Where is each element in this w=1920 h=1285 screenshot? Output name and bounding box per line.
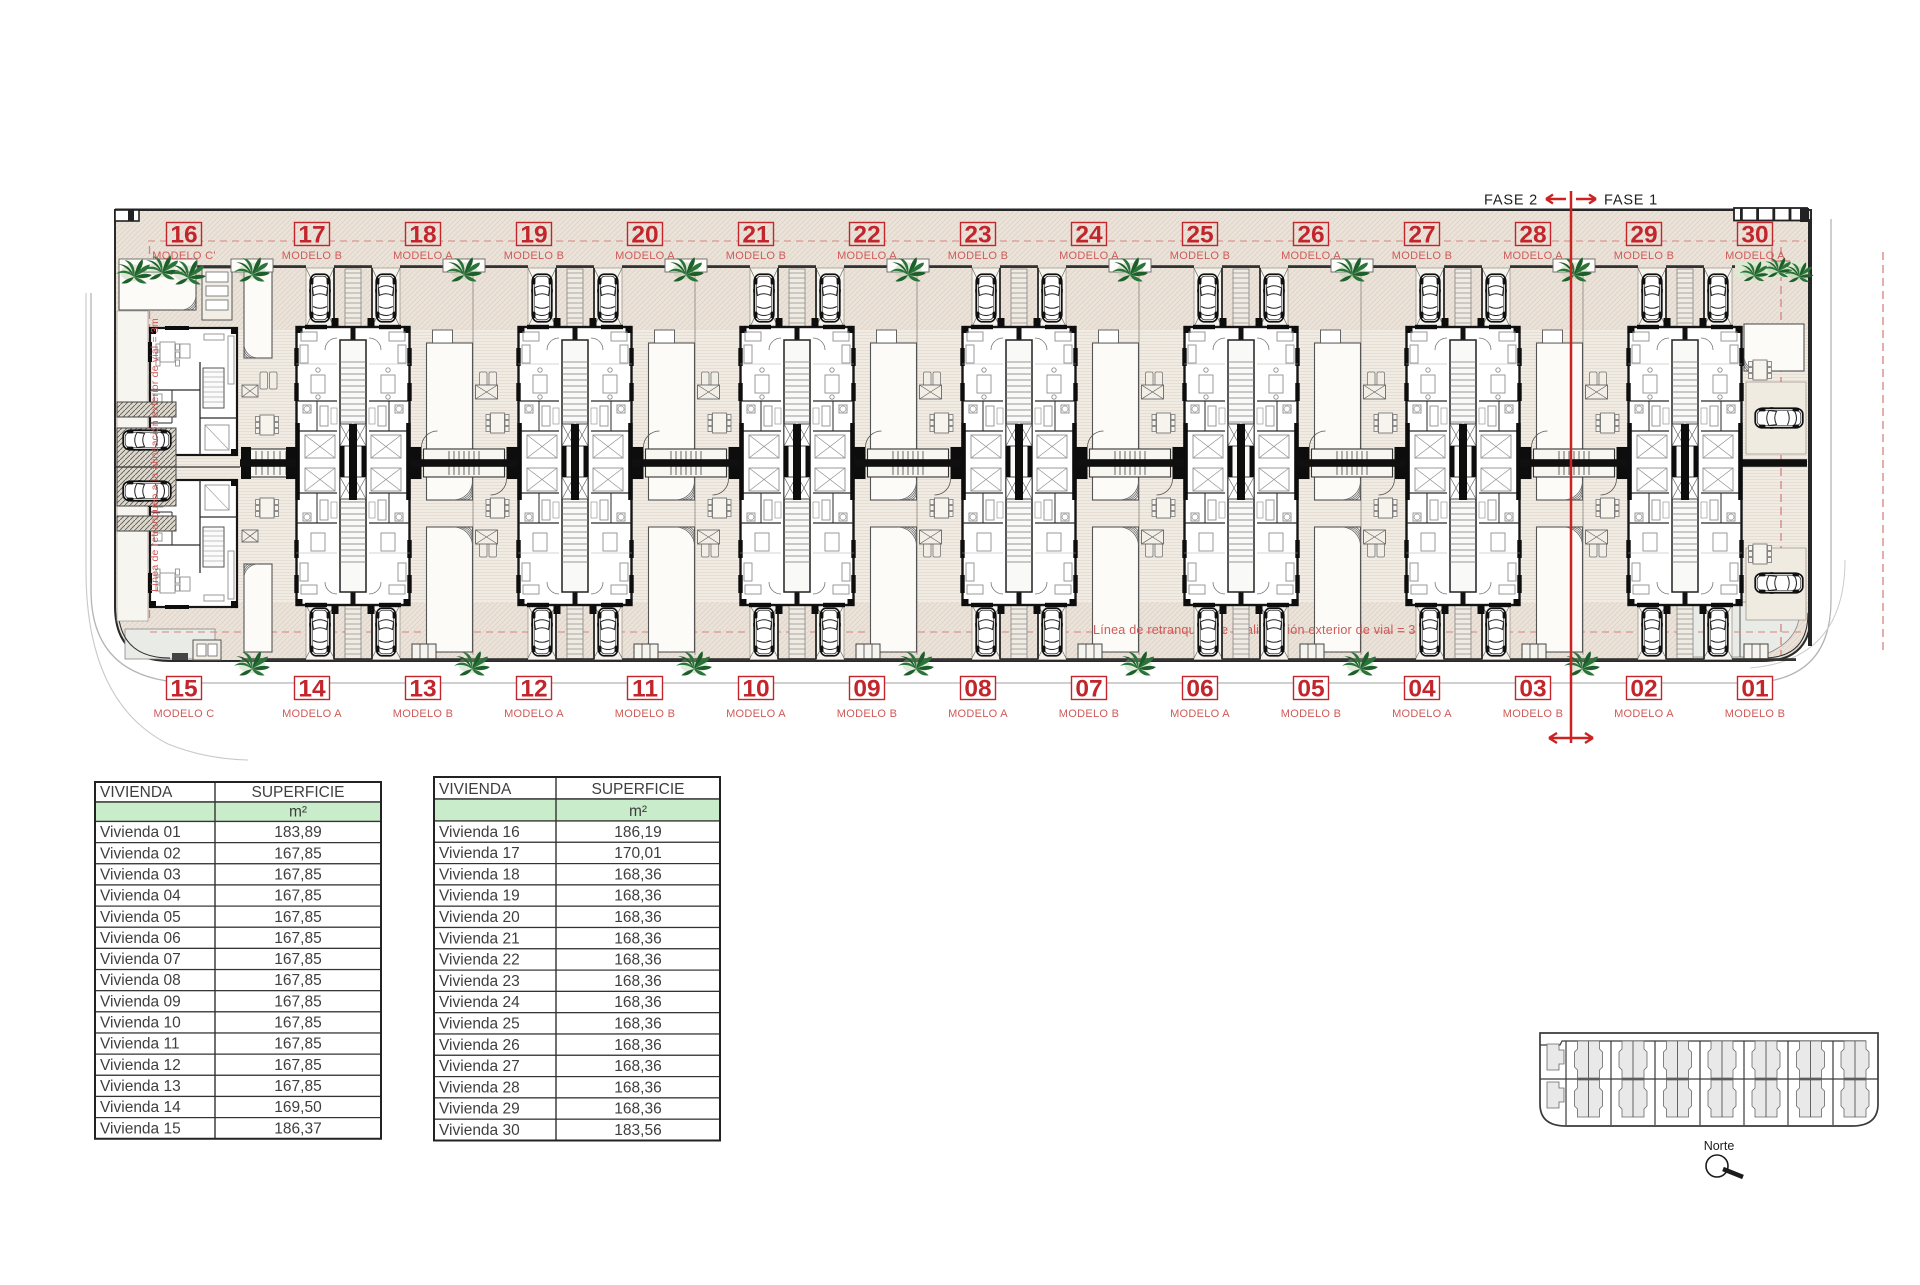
svg-text:MODELO B: MODELO B — [1392, 250, 1452, 262]
svg-text:11: 11 — [632, 676, 658, 703]
svg-text:Vivienda 17: Vivienda 17 — [439, 845, 520, 862]
svg-text:MODELO A: MODELO A — [1281, 250, 1341, 262]
svg-text:13: 13 — [409, 676, 436, 703]
svg-text:Vivienda 29: Vivienda 29 — [439, 1101, 520, 1118]
svg-text:27: 27 — [1408, 222, 1435, 249]
svg-text:MODELO A: MODELO A — [282, 708, 342, 720]
svg-text:Vivienda 05: Vivienda 05 — [100, 909, 181, 926]
svg-text:MODELO B: MODELO B — [1281, 708, 1341, 720]
svg-text:167,85: 167,85 — [274, 930, 321, 947]
svg-text:Vivienda 09: Vivienda 09 — [100, 993, 181, 1010]
svg-text:Vivienda 19: Vivienda 19 — [439, 888, 520, 905]
svg-text:28: 28 — [1519, 222, 1546, 249]
svg-text:SUPERFICIE: SUPERFICIE — [591, 781, 684, 798]
svg-text:167,85: 167,85 — [274, 1015, 321, 1032]
svg-text:MODELO A: MODELO A — [1503, 250, 1563, 262]
svg-text:Vivienda 01: Vivienda 01 — [100, 824, 181, 841]
svg-text:Vivienda 06: Vivienda 06 — [100, 930, 181, 947]
svg-text:Vivienda 24: Vivienda 24 — [439, 994, 520, 1011]
svg-text:Norte: Norte — [1704, 1139, 1735, 1153]
svg-text:MODELO B: MODELO B — [504, 250, 564, 262]
svg-text:24: 24 — [1075, 222, 1103, 249]
svg-text:MODELO A: MODELO A — [1614, 708, 1674, 720]
svg-text:168,36: 168,36 — [614, 866, 661, 883]
svg-text:30: 30 — [1741, 222, 1768, 249]
svg-text:168,36: 168,36 — [614, 1037, 661, 1054]
svg-text:167,85: 167,85 — [274, 866, 321, 883]
svg-text:167,85: 167,85 — [274, 1078, 321, 1095]
svg-text:Vivienda 10: Vivienda 10 — [100, 1015, 181, 1032]
svg-text:167,85: 167,85 — [274, 888, 321, 905]
svg-text:186,19: 186,19 — [614, 824, 661, 841]
svg-text:03: 03 — [1519, 676, 1546, 703]
svg-text:17: 17 — [298, 222, 325, 249]
svg-text:Vivienda 08: Vivienda 08 — [100, 972, 181, 989]
svg-text:Vivienda 21: Vivienda 21 — [439, 930, 520, 947]
svg-text:04: 04 — [1408, 676, 1436, 703]
svg-text:167,85: 167,85 — [274, 845, 321, 862]
svg-text:19: 19 — [520, 222, 547, 249]
svg-text:168,36: 168,36 — [614, 909, 661, 926]
svg-text:21: 21 — [742, 222, 769, 249]
svg-text:08: 08 — [964, 676, 991, 703]
svg-text:14: 14 — [298, 676, 326, 703]
svg-text:Vivienda 13: Vivienda 13 — [100, 1078, 181, 1095]
svg-text:168,36: 168,36 — [614, 952, 661, 969]
svg-text:168,36: 168,36 — [614, 973, 661, 990]
svg-text:23: 23 — [964, 222, 991, 249]
svg-text:186,37: 186,37 — [274, 1120, 321, 1137]
svg-text:MODELO A: MODELO A — [1725, 250, 1785, 262]
svg-text:02: 02 — [1630, 676, 1657, 703]
svg-text:26: 26 — [1297, 222, 1324, 249]
svg-text:MODELO A: MODELO A — [504, 708, 564, 720]
svg-text:MODELO B: MODELO B — [948, 250, 1008, 262]
svg-text:SUPERFICIE: SUPERFICIE — [251, 784, 344, 801]
svg-text:Vivienda 23: Vivienda 23 — [439, 973, 520, 990]
svg-text:Vivienda 30: Vivienda 30 — [439, 1122, 520, 1139]
svg-text:Vivienda 03: Vivienda 03 — [100, 866, 181, 883]
svg-text:MODELO A: MODELO A — [948, 708, 1008, 720]
svg-text:12: 12 — [520, 676, 547, 703]
svg-text:15: 15 — [170, 676, 197, 703]
svg-text:170,01: 170,01 — [614, 845, 661, 862]
svg-text:18: 18 — [409, 222, 436, 249]
svg-text:Vivienda 16: Vivienda 16 — [439, 824, 520, 841]
svg-text:MODELO A: MODELO A — [726, 708, 786, 720]
svg-text:05: 05 — [1297, 676, 1324, 703]
svg-text:167,85: 167,85 — [274, 972, 321, 989]
svg-text:MODELO A: MODELO A — [393, 250, 453, 262]
svg-text:MODELO A: MODELO A — [1170, 708, 1230, 720]
svg-text:168,36: 168,36 — [614, 930, 661, 947]
svg-text:183,89: 183,89 — [274, 824, 321, 841]
svg-text:Vivienda 04: Vivienda 04 — [100, 888, 181, 905]
svg-text:VIVIENDA: VIVIENDA — [100, 784, 173, 801]
svg-text:MODELO B: MODELO B — [615, 708, 675, 720]
svg-text:Vivienda 22: Vivienda 22 — [439, 952, 520, 969]
svg-text:07: 07 — [1075, 676, 1102, 703]
svg-text:20: 20 — [631, 222, 658, 249]
svg-text:06: 06 — [1186, 676, 1213, 703]
svg-text:167,85: 167,85 — [274, 909, 321, 926]
svg-text:MODELO B: MODELO B — [1503, 708, 1563, 720]
svg-text:FASE 1: FASE 1 — [1604, 193, 1658, 209]
svg-text:25: 25 — [1186, 222, 1213, 249]
svg-text:FASE 2: FASE 2 — [1484, 193, 1538, 209]
svg-text:09: 09 — [853, 676, 880, 703]
svg-text:16: 16 — [170, 222, 197, 249]
svg-text:m²: m² — [629, 803, 647, 820]
svg-text:MODELO B: MODELO B — [1614, 250, 1674, 262]
svg-text:167,85: 167,85 — [274, 1036, 321, 1053]
svg-text:168,36: 168,36 — [614, 1058, 661, 1075]
svg-text:169,50: 169,50 — [274, 1099, 322, 1116]
svg-text:MODELO B: MODELO B — [393, 708, 453, 720]
svg-text:10: 10 — [742, 676, 769, 703]
svg-text:MODELO A: MODELO A — [837, 250, 897, 262]
svg-text:Vivienda 07: Vivienda 07 — [100, 951, 181, 968]
svg-text:Vivienda 02: Vivienda 02 — [100, 845, 181, 862]
svg-text:Vivienda 15: Vivienda 15 — [100, 1120, 181, 1137]
svg-text:Vivienda 12: Vivienda 12 — [100, 1057, 181, 1074]
svg-text:167,85: 167,85 — [274, 951, 321, 968]
svg-text:22: 22 — [853, 222, 880, 249]
svg-text:167,85: 167,85 — [274, 1057, 321, 1074]
svg-text:168,36: 168,36 — [614, 1016, 661, 1033]
svg-text:MODELO B: MODELO B — [282, 250, 342, 262]
svg-text:VIVIENDA: VIVIENDA — [439, 781, 512, 798]
svg-text:MODELO C': MODELO C' — [152, 250, 215, 262]
svg-text:Vivienda 27: Vivienda 27 — [439, 1058, 520, 1075]
svg-text:MODELO B: MODELO B — [1725, 708, 1785, 720]
svg-text:Vivienda 14: Vivienda 14 — [100, 1099, 181, 1116]
svg-text:168,36: 168,36 — [614, 1101, 661, 1118]
svg-text:MODELO B: MODELO B — [726, 250, 786, 262]
svg-text:168,36: 168,36 — [614, 888, 661, 905]
svg-text:Vivienda 28: Vivienda 28 — [439, 1079, 520, 1096]
svg-text:168,36: 168,36 — [614, 1079, 661, 1096]
svg-text:29: 29 — [1630, 222, 1657, 249]
svg-text:MODELO B: MODELO B — [837, 708, 897, 720]
svg-text:MODELO C: MODELO C — [153, 708, 214, 720]
svg-text:Vivienda 26: Vivienda 26 — [439, 1037, 520, 1054]
svg-text:Vivienda 25: Vivienda 25 — [439, 1016, 520, 1033]
svg-text:168,36: 168,36 — [614, 994, 661, 1011]
svg-text:Vivienda 20: Vivienda 20 — [439, 909, 520, 926]
svg-text:MODELO B: MODELO B — [1170, 250, 1230, 262]
svg-text:01: 01 — [1741, 676, 1768, 703]
svg-text:Vivienda 11: Vivienda 11 — [100, 1036, 180, 1053]
svg-text:m²: m² — [289, 804, 307, 821]
svg-text:Línea de retranqueo a la aline: Línea de retranqueo a la alineación exte… — [149, 318, 161, 592]
svg-text:183,56: 183,56 — [614, 1122, 661, 1139]
svg-text:Vivienda 18: Vivienda 18 — [439, 866, 520, 883]
svg-text:MODELO A: MODELO A — [1392, 708, 1452, 720]
svg-text:MODELO A: MODELO A — [1059, 250, 1119, 262]
svg-text:MODELO B: MODELO B — [1059, 708, 1119, 720]
svg-text:MODELO A: MODELO A — [615, 250, 675, 262]
svg-text:167,85: 167,85 — [274, 993, 321, 1010]
